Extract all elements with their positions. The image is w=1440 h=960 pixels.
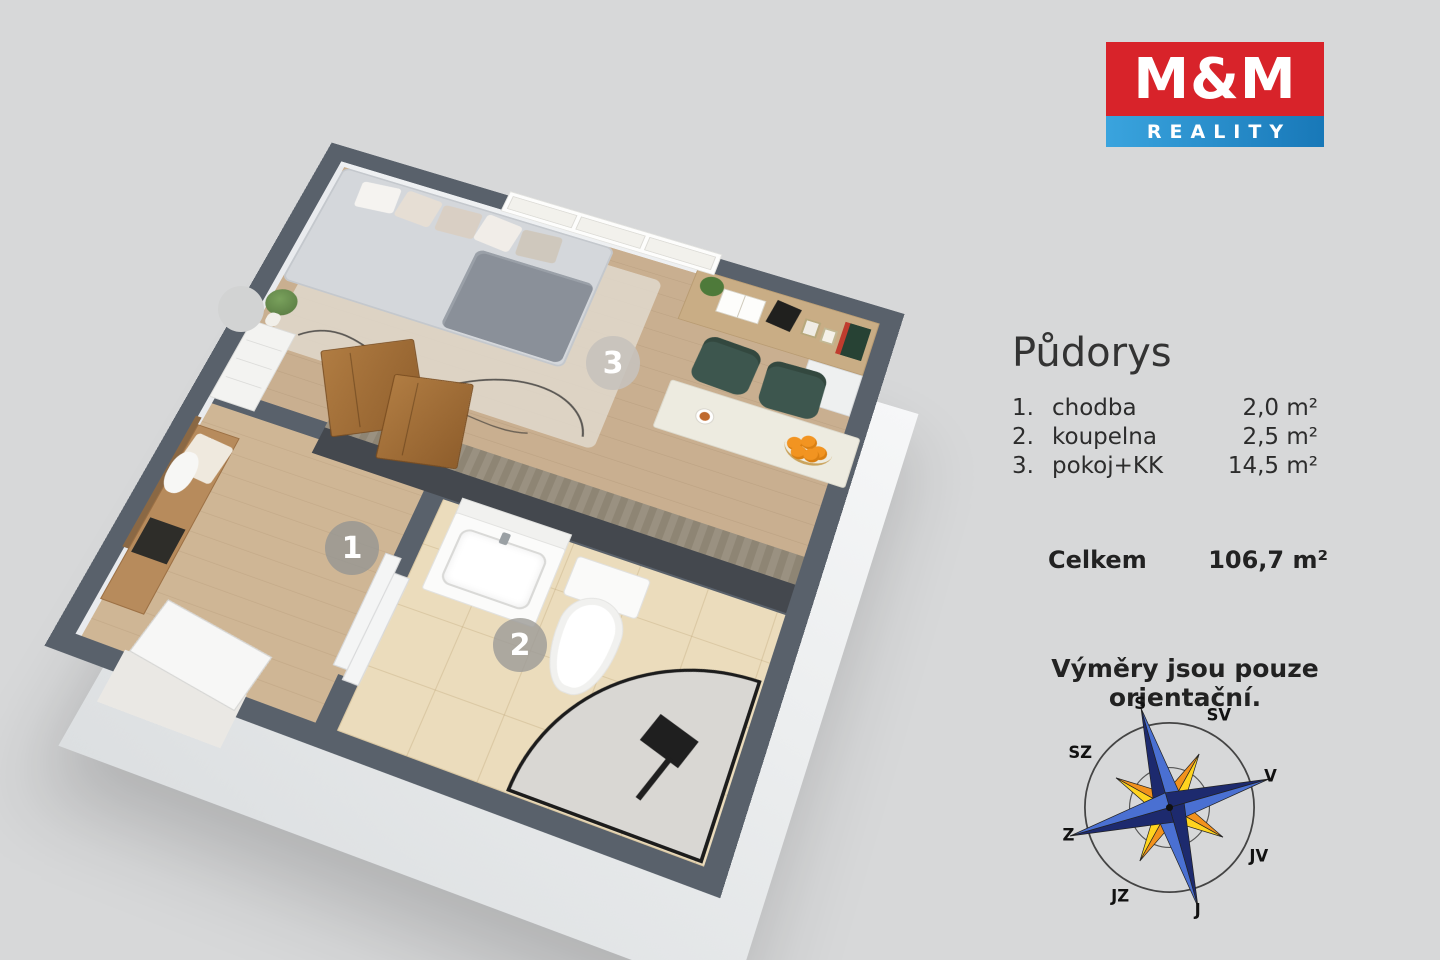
pillow xyxy=(515,229,564,264)
total-label: Celkem xyxy=(1048,546,1147,574)
page-title: Půdorys xyxy=(1012,330,1172,376)
wall-marker-dot xyxy=(218,286,264,332)
room-number-badge: 2 xyxy=(493,618,547,672)
total-area: 106,7 m² xyxy=(1208,546,1328,574)
room-name: pokoj+KK xyxy=(1052,452,1228,481)
room-name: chodba xyxy=(1052,394,1242,423)
room-number-badge: 1 xyxy=(325,521,379,575)
badge-number: 1 xyxy=(342,531,363,566)
compass-label-sw: JZ xyxy=(1110,887,1129,906)
badge-number: 2 xyxy=(510,628,531,663)
room-row: 3. pokoj+KK 14,5 m² xyxy=(1012,452,1318,481)
room-area: 2,0 m² xyxy=(1242,394,1318,423)
poster: 1 2 3 M&M REALITY Půdorys 1. chodba 2,0 … xyxy=(0,0,1440,960)
room-area: 14,5 m² xyxy=(1228,452,1318,481)
badge-number: 3 xyxy=(603,346,624,381)
picture-frame xyxy=(819,327,838,345)
room-number: 1. xyxy=(1012,394,1052,423)
compass-label-n: S xyxy=(1134,694,1146,713)
wooden-door-open xyxy=(375,374,474,470)
room-number: 3. xyxy=(1012,452,1052,481)
compass-label-ne: SV xyxy=(1207,706,1232,725)
compass-label-nw: SZ xyxy=(1068,743,1092,762)
room-area: 2,5 m² xyxy=(1242,423,1318,452)
room-row: 2. koupelna 2,5 m² xyxy=(1012,423,1318,452)
pillow xyxy=(354,181,402,214)
room-number: 2. xyxy=(1012,423,1052,452)
room-number-badge: 3 xyxy=(586,336,640,390)
picture-frame xyxy=(800,318,821,338)
logo-reality: REALITY xyxy=(1106,116,1324,147)
logo-mm: M&M xyxy=(1106,42,1324,116)
mm-reality-logo: M&M REALITY xyxy=(1106,42,1324,147)
open-book xyxy=(715,288,766,324)
compass-label-se: JV xyxy=(1248,847,1268,866)
room-row: 1. chodba 2,0 m² xyxy=(1012,394,1318,423)
compass-rose: S SV V JV J JZ Z SZ xyxy=(1052,690,1287,925)
compass-label-w: Z xyxy=(1062,825,1074,844)
room-list: 1. chodba 2,0 m² 2. koupelna 2,5 m² 3. p… xyxy=(1012,394,1318,481)
book-stack xyxy=(835,322,871,361)
compass-label-s: J xyxy=(1194,901,1201,920)
total-row: Celkem 106,7 m² xyxy=(1048,546,1328,574)
tablet xyxy=(765,300,801,332)
room-name: koupelna xyxy=(1052,423,1242,452)
compass-label-e: V xyxy=(1264,767,1277,786)
